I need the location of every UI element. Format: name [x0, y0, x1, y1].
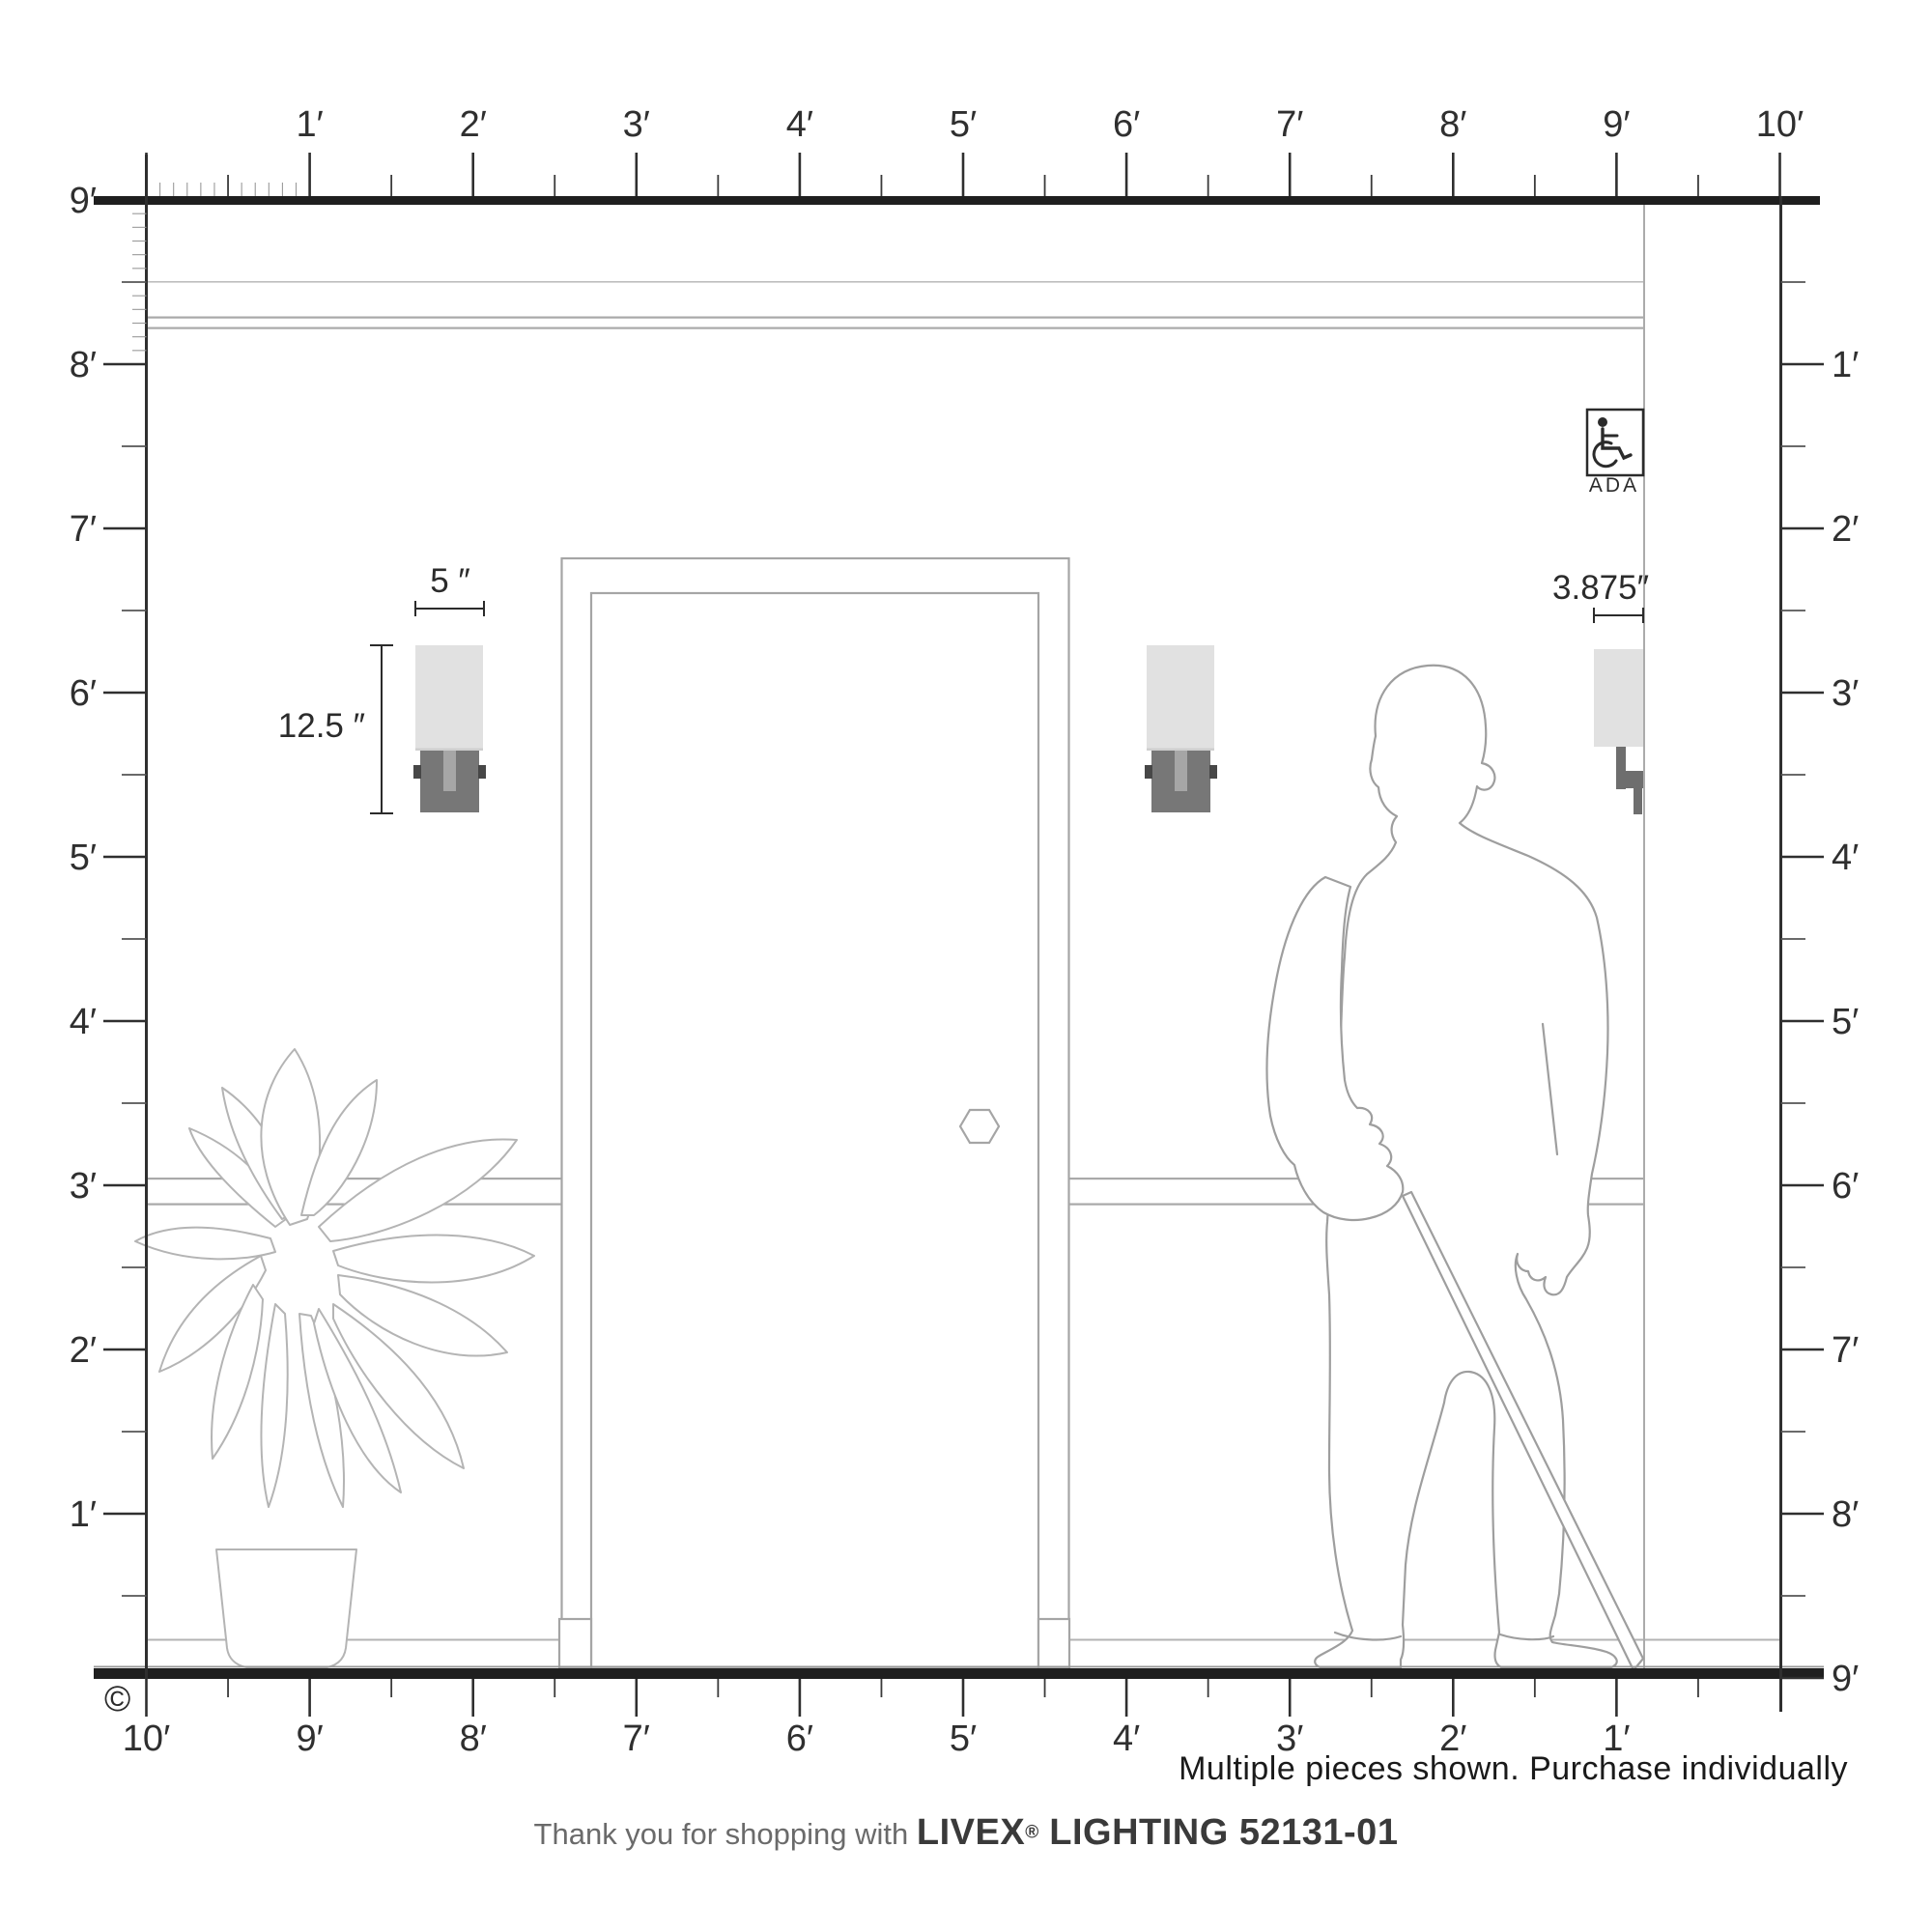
top-ruler-label: 10′ [1756, 104, 1804, 145]
purchase-note: Multiple pieces shown. Purchase individu… [1179, 1750, 1848, 1788]
door-knob [960, 1110, 999, 1143]
top-ruler-ticks [147, 153, 1780, 196]
bottom-ruler-label: 7′ [623, 1719, 650, 1759]
door [559, 558, 1069, 1669]
sconce-stem [1175, 751, 1187, 791]
left-ruler-label: 7′ [70, 509, 97, 550]
sconce-glass [415, 645, 483, 751]
dimension-height-label: 12.5 ″ [278, 707, 365, 745]
scene: 5 ″ 12.5 ″ 3.875″ ADA 1′2′3′4′5′6′7′ [0, 0, 1932, 1932]
dimension-depth [1594, 608, 1643, 623]
sconce-side-right [1594, 649, 1643, 814]
ada-badge: ADA [1587, 410, 1643, 497]
right-ruler-label: 9′ [1832, 1659, 1859, 1699]
crown-molding [147, 281, 1643, 329]
footer-brand-line: Thank you for shopping with LIVEX® LIGHT… [0, 1812, 1932, 1854]
left-ruler-line [145, 155, 148, 1679]
bottom-ruler-label: 6′ [786, 1719, 813, 1759]
brand-suffix: LIGHTING 52131-01 [1038, 1812, 1398, 1853]
top-ruler-label: 2′ [460, 104, 487, 145]
bottom-ruler-label: 10′ [123, 1719, 170, 1759]
top-ruler-label: 8′ [1439, 104, 1466, 145]
bottom-ruler-label: 8′ [460, 1719, 487, 1759]
top-ruler-label: 4′ [786, 104, 813, 145]
sconce-tab-right [478, 765, 486, 779]
right-ruler-label: 5′ [1832, 1002, 1859, 1042]
left-ruler-label: 5′ [70, 838, 97, 878]
door-plinth-right [1038, 1619, 1069, 1669]
dimension-depth-label: 3.875″ [1552, 569, 1649, 607]
sconce-tab-left [413, 765, 421, 779]
right-ruler-ticks [1781, 282, 1825, 1678]
thanks-text: Thank you for shopping with [534, 1817, 909, 1851]
ada-box [1587, 410, 1643, 475]
ceiling-bar [94, 196, 1820, 205]
left-ruler-label: 4′ [70, 1002, 97, 1042]
left-ruler-label: 9′ [70, 181, 97, 221]
dimension-width-label: 5 ″ [430, 562, 470, 600]
right-ruler-label: 4′ [1832, 838, 1859, 878]
right-ruler-label: 1′ [1832, 345, 1859, 385]
left-ruler-label: 6′ [70, 673, 97, 714]
floor-edge-line [94, 1666, 1824, 1668]
dimension-diagram: 5 ″ 12.5 ″ 3.875″ ADA 1′2′3′4′5′6′7′ [0, 0, 1932, 1932]
right-ruler-label: 8′ [1832, 1494, 1859, 1535]
right-ruler-line [1779, 196, 1782, 1712]
sconce-front-middle [1145, 645, 1217, 812]
sconce-glass [1147, 645, 1214, 751]
bottom-ruler-label: 4′ [1113, 1719, 1140, 1759]
dimension-width [415, 601, 484, 616]
registered-mark: ® [1025, 1823, 1038, 1843]
bottom-ruler-label: 9′ [296, 1719, 323, 1759]
copyright-symbol: © [104, 1679, 130, 1719]
top-ruler-label: 3′ [623, 104, 650, 145]
bottom-ruler-ticks [147, 1679, 1698, 1717]
right-ruler-label: 6′ [1832, 1166, 1859, 1207]
sconce-stem [443, 751, 456, 791]
dimension-height [370, 645, 393, 813]
top-ruler-label: 1′ [296, 104, 323, 145]
left-ruler-label: 3′ [70, 1166, 97, 1207]
floor-bar [94, 1668, 1824, 1679]
top-ruler-label: 5′ [950, 104, 977, 145]
right-ruler-label: 3′ [1832, 673, 1859, 714]
person-silhouette [1266, 666, 1643, 1670]
sconce-backplate [1634, 788, 1642, 814]
door-plinth-left [559, 1619, 591, 1669]
right-ruler-label: 7′ [1832, 1330, 1859, 1371]
left-ruler-label: 8′ [70, 345, 97, 385]
sconce-tab-right [1209, 765, 1217, 779]
right-ruler-label: 2′ [1832, 509, 1859, 550]
sconce-tab-left [1145, 765, 1152, 779]
top-ruler-label: 6′ [1113, 104, 1140, 145]
brand-name: LIVEX [917, 1812, 1025, 1853]
left-ruler-ticks [103, 213, 147, 1596]
plant-pot [216, 1549, 356, 1668]
top-ruler-label: 7′ [1276, 104, 1303, 145]
top-ruler-label: 9′ [1603, 104, 1630, 145]
left-ruler-label: 1′ [70, 1494, 97, 1535]
sconce-glass-side [1594, 649, 1643, 747]
sconce-front-left [413, 645, 486, 812]
potted-plant [135, 1049, 534, 1668]
ada-label: ADA [1589, 474, 1639, 497]
bottom-ruler-label: 5′ [950, 1719, 977, 1759]
sconce-arm-horizontal [1616, 771, 1643, 788]
plant-leaves [135, 1049, 534, 1507]
left-ruler-label: 2′ [70, 1330, 97, 1371]
